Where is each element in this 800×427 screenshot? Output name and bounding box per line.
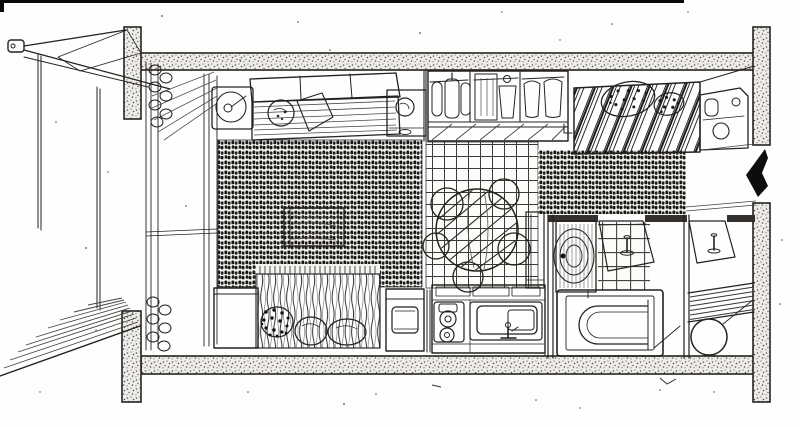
floor-plan-drawing bbox=[0, 0, 800, 427]
bottom-wall bbox=[141, 356, 755, 374]
pillar-right-lower bbox=[753, 203, 770, 402]
scan-edge-line bbox=[0, 0, 684, 3]
floor-plan-sketch bbox=[0, 0, 800, 427]
top-wall bbox=[140, 53, 755, 70]
pillar-top-left bbox=[124, 27, 141, 119]
pillar-right-upper bbox=[753, 27, 770, 145]
floor-dressing-mat bbox=[538, 150, 686, 214]
